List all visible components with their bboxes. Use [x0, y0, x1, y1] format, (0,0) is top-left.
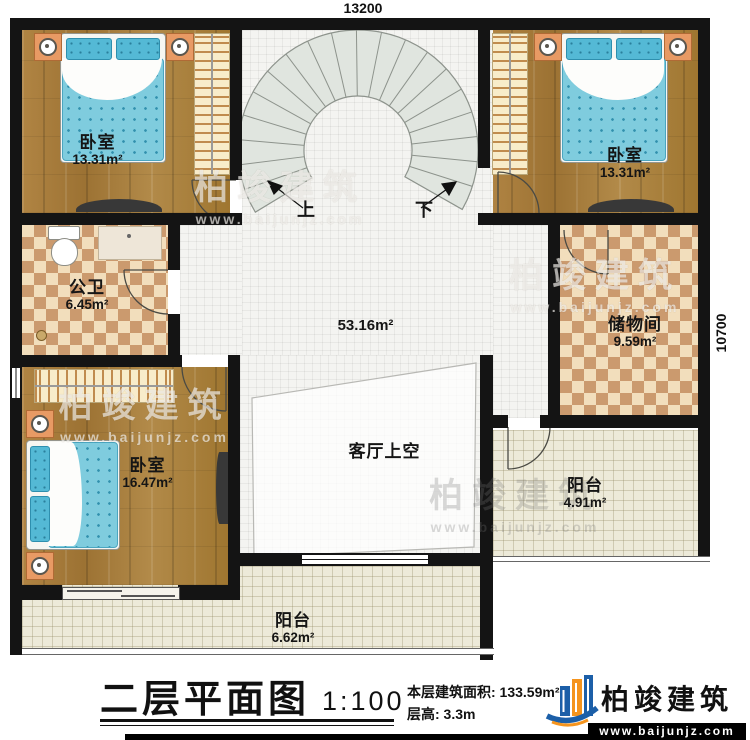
stair-up-text: 上	[292, 200, 320, 220]
wall-exterior-right	[698, 18, 710, 562]
room-name: 储物间	[590, 315, 680, 334]
title-underline	[100, 719, 394, 722]
floor-area-text: 本层建筑面积: 133.59m²	[407, 682, 559, 702]
room-area: 13.31m²	[40, 152, 155, 167]
nightstand	[166, 33, 194, 61]
room-name: 客厅上空	[322, 442, 447, 461]
stair-up-label: 上	[292, 200, 320, 220]
room-label-balcony-bottom: 阳台 6.62m²	[248, 611, 338, 645]
room-label-storage: 储物间 9.59m²	[590, 315, 680, 349]
room-area: 6.62m²	[248, 630, 338, 645]
table-lamp-icon	[539, 38, 557, 56]
stair-down-text: 下	[410, 200, 438, 220]
window	[10, 368, 22, 398]
room-label-bedroom-tr: 卧室 13.31m²	[570, 146, 680, 180]
wall-interior	[493, 415, 508, 428]
bed-sheet	[48, 442, 82, 546]
room-area: 9.59m²	[590, 334, 680, 349]
brand-name: 柏竣建筑	[601, 678, 733, 718]
void-label: 客厅上空	[322, 442, 447, 461]
drawing-scale: 1:100	[322, 686, 405, 717]
room-name: 卧室	[570, 146, 680, 165]
window	[302, 553, 428, 566]
hall-floor	[242, 30, 493, 355]
wall-interior	[10, 355, 182, 367]
room-area: 53.16m²	[318, 318, 413, 335]
room-name: 卧室	[100, 456, 195, 475]
wall-interior	[168, 225, 180, 270]
nightstand	[26, 410, 54, 438]
nightstand	[26, 552, 54, 580]
room-area: 16.47m²	[100, 475, 195, 490]
wall-interior	[10, 213, 242, 225]
pillow	[116, 38, 160, 60]
pillow	[566, 38, 612, 60]
room-name: 阳台	[248, 611, 338, 630]
pillow	[66, 38, 112, 60]
nightstand	[34, 33, 62, 61]
room-area: 13.31m²	[570, 165, 680, 180]
stair-down-label: 下	[410, 200, 438, 220]
dimension-value: 10700	[713, 314, 729, 353]
wall-interior	[548, 225, 560, 428]
brand-logo-icon	[543, 666, 601, 728]
room-area: 6.45m²	[47, 297, 127, 312]
wardrobe	[194, 33, 230, 175]
wall-interior	[480, 355, 493, 660]
faucet-icon	[127, 234, 131, 238]
hall-floor-west	[180, 225, 242, 355]
room-label-bedroom-bl: 卧室 16.47m²	[100, 456, 195, 490]
wardrobe	[34, 369, 174, 403]
wardrobe	[492, 33, 528, 175]
room-name: 公卫	[47, 278, 127, 297]
brand-url: www.baijunjz.com	[588, 723, 746, 740]
dimension-right: 10700	[713, 300, 729, 366]
title-underline-thin	[100, 725, 394, 726]
table-lamp-icon	[31, 557, 49, 575]
balcony-railing	[493, 556, 710, 562]
wall-exterior-left	[10, 18, 22, 655]
hall-corridor-floor	[493, 225, 548, 418]
wall-interior	[478, 213, 710, 225]
bottom-rule	[125, 734, 588, 740]
wall-interior	[230, 30, 242, 180]
wall-interior	[228, 355, 240, 600]
floor-drain-icon	[36, 330, 47, 341]
wall-interior	[428, 553, 481, 566]
room-label-balcony-right: 阳台 4.91m²	[545, 476, 625, 510]
table-lamp-icon	[39, 38, 57, 56]
balcony-railing	[22, 648, 494, 655]
wall-exterior-top	[10, 18, 710, 30]
wall-interior	[178, 585, 240, 600]
room-name: 卧室	[40, 133, 155, 152]
dimension-top: 13200	[330, 0, 396, 16]
room-name: 阳台	[545, 476, 625, 495]
nightstand	[664, 33, 692, 61]
table-lamp-icon	[31, 415, 49, 433]
wall-interior	[540, 415, 710, 428]
pillow	[30, 496, 50, 542]
room-label-bathroom: 公卫 6.45m²	[47, 278, 127, 312]
vanity-counter	[98, 226, 162, 260]
floor-plan-page: 柏竣建筑 www.baijunjz.com 柏竣建筑 www.baijunjz.…	[0, 0, 750, 740]
pillow	[616, 38, 662, 60]
table-lamp-icon	[171, 38, 189, 56]
room-label-bedroom-tl: 卧室 13.31m²	[40, 133, 155, 167]
room-area: 4.91m²	[545, 495, 625, 510]
hall-area-label: 53.16m²	[318, 318, 413, 335]
table-lamp-icon	[669, 38, 687, 56]
wall-interior	[10, 585, 62, 600]
drawing-title: 二层平面图	[100, 668, 310, 723]
nightstand	[534, 33, 562, 61]
dimension-value: 13200	[344, 0, 383, 16]
wall-interior	[240, 553, 302, 566]
pillow	[30, 446, 50, 492]
floor-height-text: 层高: 3.3m	[407, 704, 475, 724]
wall-interior	[478, 30, 490, 168]
sliding-door	[62, 587, 180, 600]
toilet-bowl-icon	[51, 238, 78, 266]
tv-icon	[216, 452, 228, 524]
